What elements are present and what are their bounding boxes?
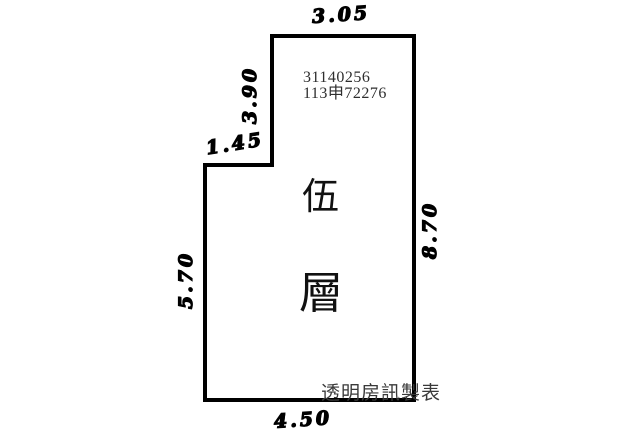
dimension-lower-left: 5.70 (175, 251, 197, 309)
watermark-text: 透明房訊製表 (321, 378, 441, 405)
dimension-bottom: 4.50 (273, 407, 333, 433)
floor-plan-scan: 3.05 3.90 1.45 5.70 8.70 4.50 31140256 1… (0, 0, 640, 443)
dimension-upper-left: 3.90 (239, 66, 261, 124)
case-number: 113申72276 (303, 86, 387, 102)
floor-label-char-1: 伍 (302, 166, 339, 220)
dimension-top: 3.05 (311, 2, 371, 28)
dimension-right: 8.70 (419, 201, 441, 259)
floor-plan-outline (0, 0, 640, 443)
id-number: 31140256 (303, 70, 387, 86)
floor-label-char-2: 層 (299, 257, 343, 321)
id-block: 31140256 113申72276 (303, 70, 387, 102)
